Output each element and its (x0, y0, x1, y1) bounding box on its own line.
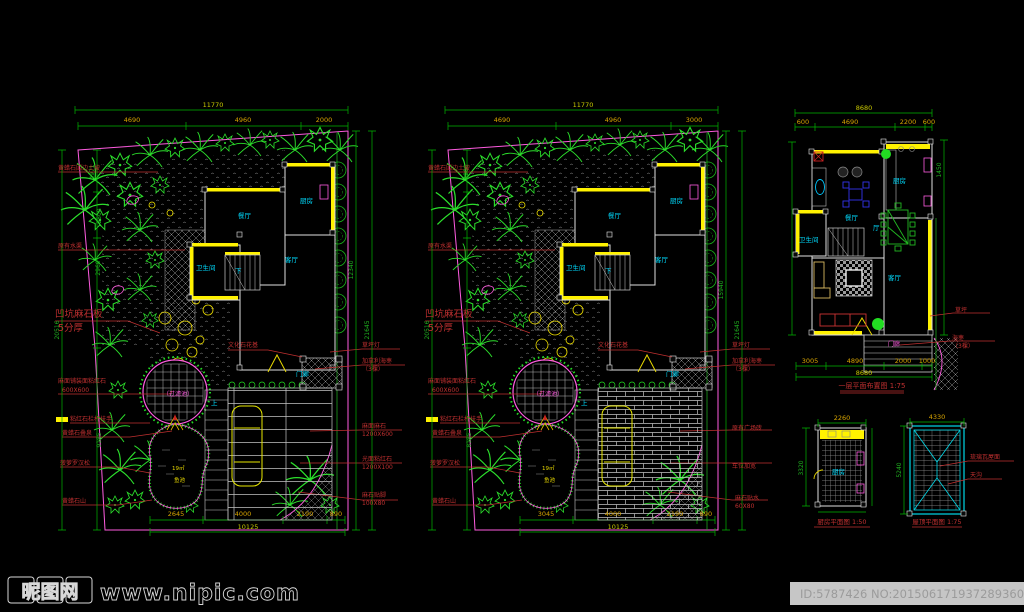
dim: 600 (797, 118, 809, 126)
pond-area-label: 19㎡ (172, 464, 185, 472)
dim: 3005 (802, 357, 819, 365)
floor-plan-walls (793, 139, 933, 372)
dim: 890 (700, 510, 712, 518)
cad-drawing: 11770 4690 4960 2000 2645 4000 2190 890 … (0, 0, 1024, 612)
pool-label: （过滤池） (163, 390, 193, 398)
annotation: 60X80 (735, 503, 755, 510)
annotation: 菠萝罗汉松 (430, 459, 460, 467)
annotation: 600X600 (432, 387, 459, 394)
dim: 2800 (96, 208, 103, 223)
dim: 4890 (847, 357, 864, 365)
annotation: 麻面铺装面粘红石 (58, 377, 106, 385)
annotation: 海枣 (952, 334, 964, 342)
dim: 15940 (718, 280, 725, 299)
dim-total-top: 8680 (856, 104, 873, 112)
site-plan-b: 11770 4690 4960 3000 3045 4000 2190 890 … (424, 101, 775, 536)
annotation: 光面粘红石 (362, 455, 392, 463)
dim: 8185 (466, 432, 473, 447)
room-label-dining: 餐厅 (845, 213, 859, 222)
room-label-living: 客厅 (655, 255, 669, 264)
annotation: 5分厚 (428, 323, 454, 334)
dim-total-bottom: 8680 (856, 369, 873, 377)
annotation: 凹坑麻石板 (55, 308, 103, 320)
dim: 21645 (364, 320, 371, 339)
dim: 3320 (798, 460, 805, 475)
dim: 21645 (734, 320, 741, 339)
annotation: 黄蜡石围边土坡 (58, 164, 100, 172)
annotation: （3棵） (732, 365, 754, 373)
dim: 4330 (929, 413, 946, 421)
stair-down-label: 下 (235, 267, 242, 275)
dim: 12340 (348, 260, 355, 279)
annotation: 车位加宽 (732, 462, 756, 470)
room-label-kitchen: 厨房 (893, 176, 906, 185)
dim: 4690 (124, 116, 141, 124)
annotation: 天沟 (970, 471, 982, 479)
annotation: 麻面麻石 (362, 422, 386, 430)
roof-plan-title: 屋顶平面图 1:75 (912, 518, 961, 526)
dim: 1000 (919, 357, 936, 365)
annotation: 黄蜡石叠泉 (62, 429, 92, 437)
site-plan-a: 11770 4690 4960 2000 2645 4000 2190 890 … (54, 101, 405, 536)
dim: 2200 (900, 118, 917, 126)
dim: 4960 (235, 116, 252, 124)
annotation: 加拿利海枣 (732, 357, 762, 365)
pond-name-label: 鱼池 (174, 476, 186, 484)
pond-area-label: 19㎡ (542, 464, 555, 472)
annotation: 粘红石栏杆扶手 (440, 415, 482, 423)
kitchen-detail-title: 厨房平面图 1:50 (817, 517, 866, 526)
annotation: 草坪灯 (732, 341, 750, 349)
watermark-url: www.nipic.com (100, 581, 300, 606)
room-label-bath: 卫生间 (799, 235, 819, 244)
annotation: 5分厚 (58, 323, 84, 334)
dim: 2000 (895, 357, 912, 365)
room-label-dining: 餐厅 (608, 211, 622, 220)
annotation: 草坪灯 (362, 341, 380, 349)
annotation: 麻石贴脚 (362, 491, 386, 499)
dim: 2645 (168, 510, 185, 518)
dim: 2190 (667, 510, 684, 518)
annotation: 麻面铺装面粘红石 (428, 377, 476, 385)
annotation: 100X80 (362, 500, 385, 507)
room-label-bath: 卫生间 (566, 263, 586, 272)
dim: 890 (330, 510, 342, 518)
floor-plan-title: 一层平面布置图 1:75 (839, 381, 906, 390)
watermark: 昵图网 www.nipic.com ID:5787426 NO:20150617… (8, 577, 1024, 606)
dim: 4690 (842, 118, 859, 126)
annotation: （3棵） (362, 365, 384, 373)
dim: 4000 (235, 510, 252, 518)
room-label-living: 客厅 (888, 273, 902, 282)
roof-plan: 4330 5240 琉璃瓦屋面 天沟 屋顶平面图 1:75 (896, 413, 1014, 527)
annotation: 琉璃瓦屋面 (970, 453, 1000, 461)
dim: 3000 (686, 116, 703, 124)
annotation: 600X600 (62, 387, 89, 394)
annotation: 1200X600 (362, 431, 393, 438)
pond-name-label: 鱼池 (544, 476, 556, 484)
dim-total-bottom: 10125 (238, 523, 259, 531)
cad-screenshot: 11770 4690 4960 2000 2645 4000 2190 890 … (0, 0, 1024, 612)
annotation: 加拿利海枣 (362, 357, 392, 365)
image-id-text: ID:5787426 NO:20150617193728936000 (800, 587, 1024, 601)
annotation: 黄蜡石山 (432, 497, 456, 505)
dim: 4690 (494, 116, 511, 124)
dim: 5240 (896, 462, 903, 477)
dim: 2000 (316, 116, 333, 124)
dim: 4000 (605, 510, 622, 518)
annotation: 麻石贴水 (735, 494, 759, 502)
floor-plan: 8680 600 4690 2200 600 3005 4890 2000 10… (788, 104, 995, 393)
dim-total-bottom: 10125 (608, 523, 629, 531)
annotation: 黄蜡石围边土坡 (428, 164, 470, 172)
annotation: 粘红石栏杆扶手 (70, 415, 112, 423)
room-label-porch: 门廊 (296, 369, 310, 378)
stair-up-label: 上 (581, 398, 588, 407)
dim: 600 (923, 118, 935, 126)
annotation: 文化石花基 (228, 341, 258, 349)
annotation: 文化石花基 (598, 341, 628, 349)
kitchen-detail-plan: 2260 3320 厨房 厨房平面图 1:50 (798, 414, 872, 527)
room-label-living: 客厅 (285, 255, 299, 264)
room-label-porch: 门廊 (666, 369, 680, 378)
annotation: 黄蜡石叠泉 (432, 429, 462, 437)
annotation: 黄蜡石山 (62, 497, 86, 505)
room-label-kitchen: 厨房 (670, 196, 683, 205)
annotation: 原有水渠 (58, 242, 82, 250)
dim: 2960 (95, 260, 102, 275)
dim: 9185 (96, 432, 103, 447)
stair-down-label: 下 (605, 267, 612, 275)
dim-total-top: 11770 (203, 101, 224, 109)
annotation: 草坪 (955, 306, 967, 314)
annotation: 凹坑麻石板 (425, 308, 473, 320)
room-label-kitchen: 厨房 (832, 467, 845, 476)
watermark-site-name: 昵图网 (21, 581, 78, 603)
room-label-bath: 卫生间 (196, 263, 216, 272)
dim: 3045 (538, 510, 555, 518)
dim: 1450 (936, 162, 943, 177)
annotation: 菠萝罗汉松 (60, 459, 90, 467)
dim-total-top: 11770 (573, 101, 594, 109)
dim: 2260 (834, 414, 851, 422)
annotation: （3棵） (952, 342, 974, 350)
room-label-kitchen: 厨房 (300, 196, 313, 205)
annotation: 原有水渠 (428, 242, 452, 250)
stair-up-label: 上 (211, 398, 218, 407)
annotation: 原有广场砖 (732, 424, 762, 432)
driveway-plank-paving (228, 388, 332, 520)
pool-label: （过滤池） (533, 390, 563, 398)
dim: 2190 (297, 510, 314, 518)
room-label-hall: 厅 (873, 224, 880, 232)
room-label-porch: 门廊 (888, 340, 900, 348)
room-label-dining: 餐厅 (238, 211, 252, 220)
driveway-brick-paving (598, 388, 702, 520)
dim: 4960 (605, 116, 622, 124)
annotation: 1200X100 (362, 464, 393, 471)
